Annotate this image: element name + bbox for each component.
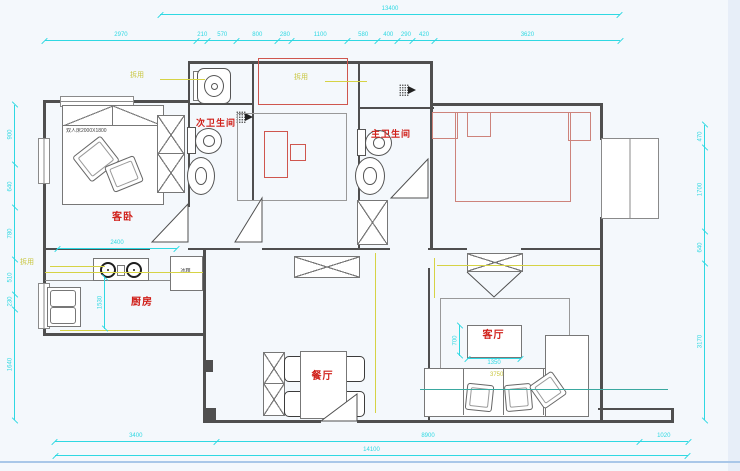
- dimension-value: 1350: [467, 360, 521, 367]
- leader-label: 拆用: [130, 72, 144, 80]
- dimension-value: 290: [398, 32, 413, 39]
- dimension-value: 1700: [698, 160, 705, 220]
- dimension-value: 800: [237, 32, 278, 39]
- dimension-top-total: 13400: [160, 14, 620, 15]
- dimension-segment: 3170: [704, 264, 705, 420]
- room-label-dining: 餐厅: [300, 371, 345, 382]
- dimension-value: 280: [278, 32, 292, 39]
- dimension-coffee-table-depth: 700: [459, 325, 460, 356]
- door-swing: [321, 394, 357, 421]
- dimension-row-right: 47017006403170: [704, 125, 705, 420]
- dimension-value: 3620: [435, 32, 620, 39]
- room-label-guest-bedroom: 客卧: [112, 212, 134, 223]
- dimension-value: 2400: [57, 240, 177, 247]
- dimension-value: 1020: [640, 433, 688, 440]
- doors-layer: [0, 0, 740, 471]
- dimension-segment: 640: [704, 232, 705, 264]
- leader-label: 拆用: [20, 259, 34, 267]
- dimension-segment: 640: [14, 165, 15, 208]
- door-swing: [152, 204, 188, 242]
- dimension-row-left: 9006407805102301640: [14, 105, 15, 420]
- closet-swing-lines: [467, 272, 521, 297]
- dimension-segment: 3620: [435, 40, 620, 41]
- dimension-value: 420: [413, 32, 434, 39]
- dimension-segment: 420: [413, 40, 434, 41]
- dimension-segment: 800: [237, 40, 278, 41]
- dimension-value: 8900: [217, 433, 640, 440]
- dimension-kitchen-width: 2400: [57, 248, 177, 249]
- dimension-value: 3400: [55, 433, 217, 440]
- dimension-value: 1640: [8, 335, 15, 395]
- dimension-segment: 580: [348, 40, 378, 41]
- dimension-segment: 1100: [292, 40, 348, 41]
- dimension-value: 1100: [292, 32, 348, 39]
- dimension-kitchen-depth: 1530: [104, 277, 105, 329]
- dimension-value: 400: [378, 32, 398, 39]
- dimension-segment: 470: [704, 125, 705, 148]
- dimension-row-top: 297021057080028011005804002904203620: [45, 40, 620, 41]
- leader-line: [50, 266, 105, 267]
- living-mark-line: [437, 265, 600, 266]
- dimension-value: 3170: [698, 311, 705, 371]
- leader-line: [160, 79, 205, 80]
- dimension-value: 1530: [98, 273, 105, 333]
- dimension-value: 14100: [55, 447, 688, 454]
- dimension-value: 700: [453, 310, 460, 370]
- room-label-living: 客厅: [467, 330, 520, 341]
- dimension-value: 210: [197, 32, 208, 39]
- room-label-kitchen: 厨房: [131, 297, 153, 308]
- dining-mark-line: [375, 253, 376, 413]
- dimension-bottom-total: 14100: [55, 455, 688, 456]
- leader-label: 拆用: [294, 74, 308, 82]
- dimension-segment: 3400: [55, 441, 217, 442]
- dimension-segment: 1640: [14, 310, 15, 420]
- dimension-coffee-table-width: 1350: [467, 358, 521, 359]
- floor-plan-canvas: 双人床2000X1800 冰箱: [0, 0, 740, 471]
- dimension-segment: 570: [208, 40, 237, 41]
- door-swing: [235, 198, 262, 242]
- dimension-value: 13400: [160, 6, 620, 13]
- dimension-value: 2970: [45, 32, 197, 39]
- dimension-segment: 2970: [45, 40, 197, 41]
- dimension-value: 570: [208, 32, 237, 39]
- dimension-row-bottom: 340089001020: [55, 441, 688, 442]
- leader-line: [325, 81, 367, 82]
- room-label-second-bathroom: 次卫生间: [196, 118, 236, 129]
- living-mark-line: [434, 258, 435, 298]
- dimension-segment: 1020: [640, 441, 688, 442]
- door-swing: [391, 159, 428, 198]
- dimension-value: 580: [348, 32, 378, 39]
- sofa-width-label: 3750: [490, 371, 503, 379]
- room-label-master-bathroom: 主卫生间: [371, 129, 411, 140]
- dimension-segment: 8900: [217, 441, 640, 442]
- kitchen-mark-line: [45, 272, 203, 273]
